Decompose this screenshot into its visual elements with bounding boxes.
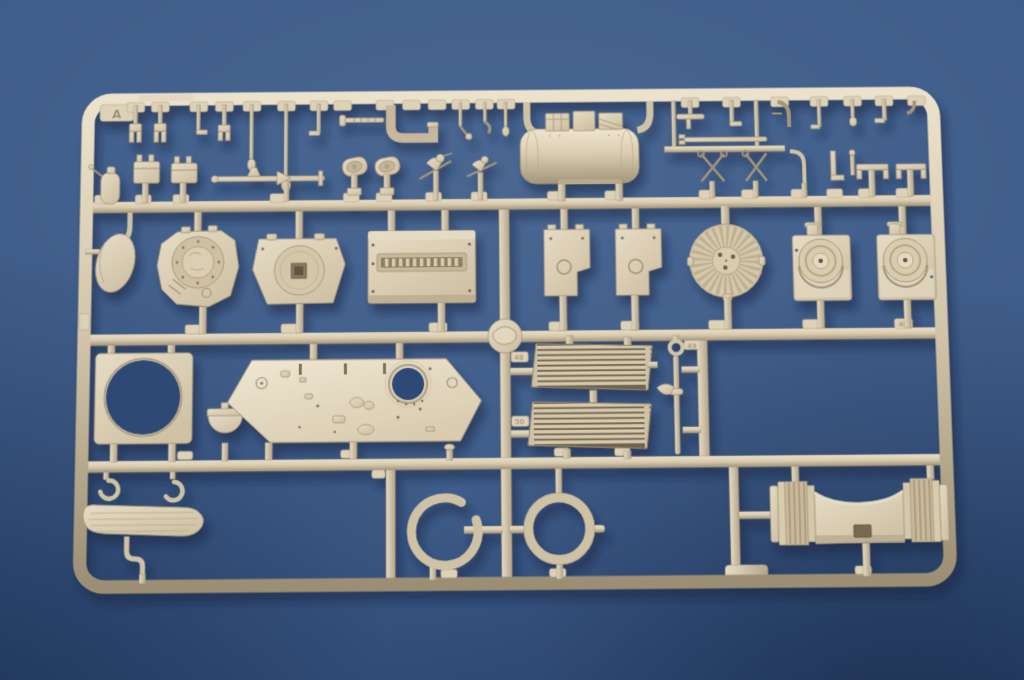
right-mid-vertical-runner bbox=[697, 335, 710, 458]
trapezoid-disc-part bbox=[252, 211, 345, 333]
sprue-a: A A bbox=[74, 88, 951, 587]
lever-linkage-part bbox=[419, 153, 452, 200]
engine-grille-upper-part bbox=[510, 335, 658, 392]
sprue-perspective-wrap: A A bbox=[0, 4, 1024, 680]
rail-4 bbox=[87, 454, 940, 473]
hull-deck-plate-part bbox=[227, 342, 482, 460]
bottom-right-vertical-runner bbox=[729, 462, 741, 579]
engine-grille-lower-part bbox=[510, 390, 656, 460]
bottom-left-vertical-runner bbox=[386, 465, 395, 582]
turret-ring-casting-part bbox=[156, 212, 239, 334]
tab-50: 50 bbox=[512, 416, 529, 426]
row3-parts bbox=[84, 204, 937, 335]
axle-rod-part bbox=[211, 167, 325, 202]
part-number-49: 49 bbox=[687, 342, 697, 350]
eyelet-rod-part bbox=[656, 335, 701, 454]
split-ring-part bbox=[411, 497, 503, 580]
screw-rod-part bbox=[340, 115, 384, 126]
notched-plate-part bbox=[544, 209, 591, 331]
muffler-part bbox=[520, 101, 652, 201]
row4-parts bbox=[94, 334, 702, 463]
gate-hub bbox=[488, 319, 522, 353]
stem-drop-part bbox=[247, 104, 255, 170]
wood-plank-part bbox=[83, 504, 204, 537]
part-number-48: 48 bbox=[514, 354, 524, 362]
gun-cradle-saddle-part bbox=[738, 465, 951, 577]
mold-info-strip bbox=[138, 94, 193, 101]
center-vertical-runner bbox=[499, 204, 512, 578]
radial-fan-disc-part bbox=[686, 205, 766, 329]
sprue-letter: A bbox=[112, 107, 122, 121]
row5-parts bbox=[82, 465, 951, 584]
final-drive-housing-part bbox=[876, 206, 938, 328]
bolt-part bbox=[444, 444, 454, 460]
notched-plate-part bbox=[615, 208, 663, 330]
s-bracket-part bbox=[126, 536, 146, 583]
hook-loop-part bbox=[166, 472, 183, 501]
photo-backdrop: A A bbox=[0, 0, 1024, 680]
final-drive-housing-part bbox=[791, 206, 852, 328]
full-ring-part bbox=[509, 468, 605, 579]
linkage-cluster bbox=[663, 99, 926, 199]
vented-box-plate-part bbox=[368, 210, 476, 333]
oval-shield-part bbox=[85, 213, 142, 297]
tab-48: 48 bbox=[511, 352, 528, 362]
wing-part bbox=[676, 101, 704, 129]
tab-49: 49 bbox=[684, 340, 700, 350]
hook-loop-part bbox=[100, 472, 118, 499]
sprue-photo: A A bbox=[0, 4, 1024, 680]
square-plate-round-hole-part bbox=[94, 345, 193, 463]
part-number-50: 50 bbox=[515, 418, 525, 426]
